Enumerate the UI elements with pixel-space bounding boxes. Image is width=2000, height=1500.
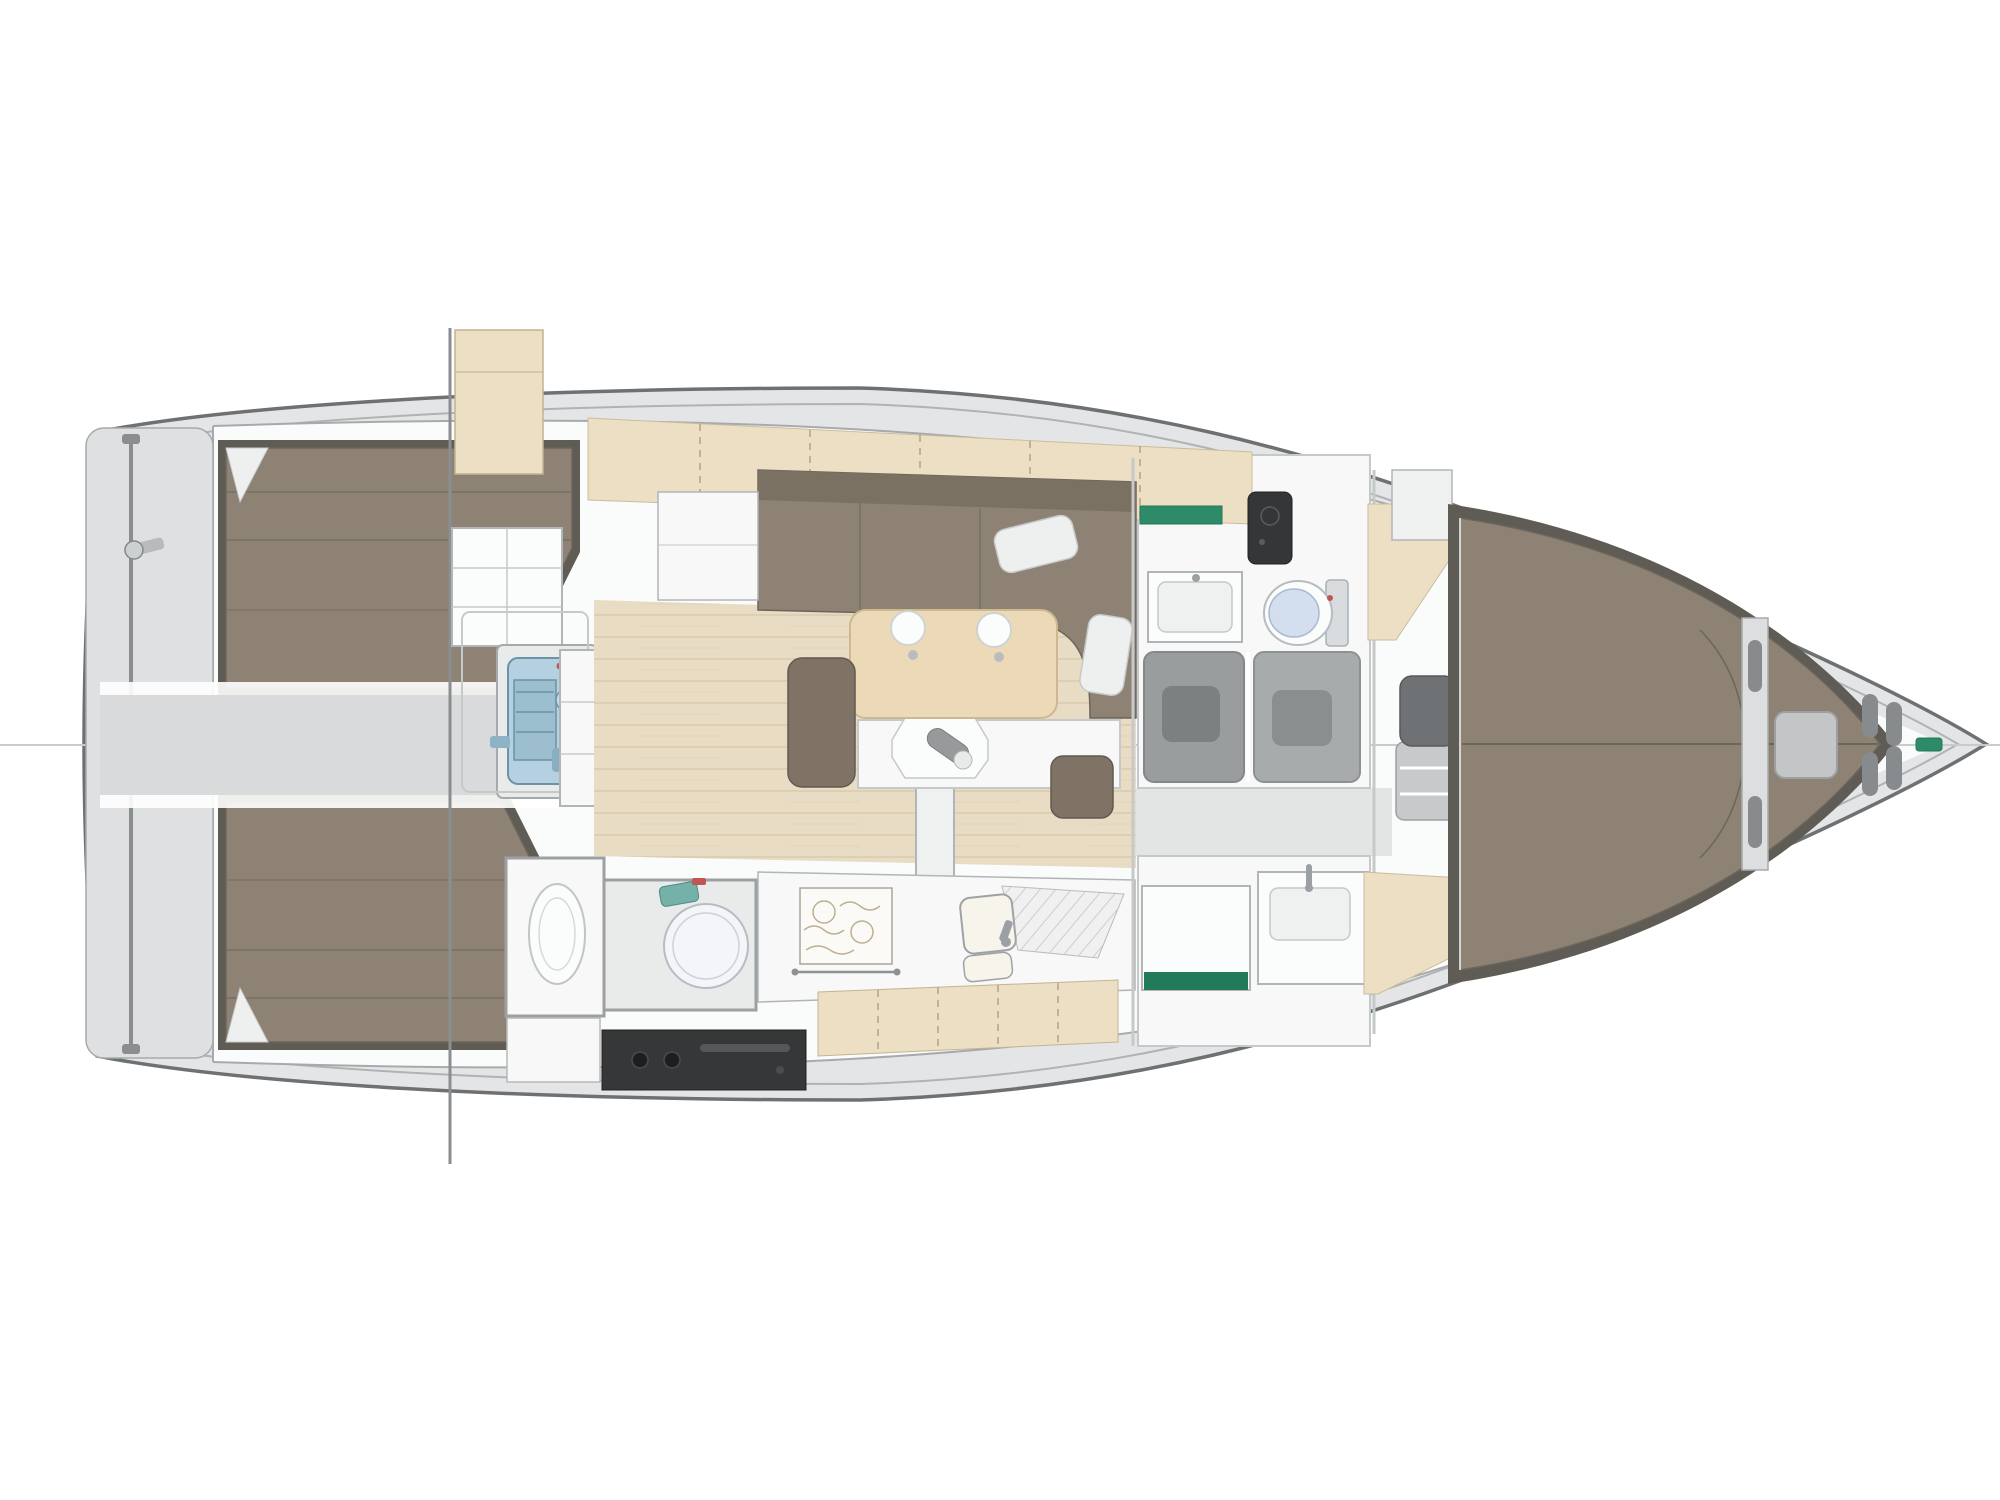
- oven-vent: [776, 1066, 784, 1074]
- corridor-wall-top: [100, 682, 560, 697]
- galley-lockers: Galley locker fronts: [818, 980, 1118, 1056]
- galley-sink-small: Galley sink: [963, 952, 1013, 983]
- starboard-head-group: Starboard heads / shower room Cabinet wi…: [1138, 856, 1370, 1046]
- ladder-cap-top: [122, 434, 140, 444]
- fitting-wheel: [125, 541, 143, 559]
- vanity-drain: [1259, 539, 1265, 545]
- oven-handle: [700, 1044, 790, 1052]
- galley-cabinet-front: Galley cabinet front: [507, 1018, 600, 1082]
- hawse-slot: [1886, 746, 1902, 790]
- corridor-wall-bottom: [100, 793, 560, 808]
- settee-end-cabinet: Settee end cabinet: [658, 492, 758, 600]
- gimbal-pivot: [894, 969, 901, 976]
- galley-faucet-base: [1001, 937, 1011, 947]
- sink-faucet-base: [1305, 884, 1313, 892]
- cup-holder: Recessed cup holder: [891, 611, 925, 645]
- shower-seat: Shower seat: [1272, 690, 1332, 746]
- salon-table-top: Saloon table (wood top): [850, 610, 1057, 718]
- forward-walkway: Passage to forward cabin: [1136, 788, 1392, 856]
- toilet-lid: [1269, 589, 1319, 637]
- water-heater-tank: [664, 904, 748, 988]
- heater-valve: [692, 878, 706, 885]
- starboard-sink-console: Washbasin console: [1258, 864, 1368, 984]
- vanity-unit: Dark vanity unit: [1248, 492, 1292, 564]
- cabinet-green-base: [1144, 972, 1248, 990]
- salon-bench-fwd: Upholstered bench (forward): [1051, 756, 1113, 818]
- bulkhead-slot: [1748, 796, 1762, 848]
- companionway-hatch: Companionway hatch panels: [452, 528, 562, 646]
- companionway-garage: Companionway garage: [455, 330, 543, 474]
- cup-holder-latch: [908, 650, 918, 660]
- water-heater-bay: Water heater / round tank Pump unit: [604, 878, 756, 1010]
- stove-group: Gimbaled stove with pot holders: [792, 888, 901, 976]
- floor-plan-svg: Sailing yacht interior layout plan (top …: [0, 0, 2000, 1500]
- table-pedestal: Table pedestal: [916, 788, 954, 888]
- aft-head: Aft heads compartment Aft heads bowl: [506, 858, 604, 1016]
- forward-cabinet: [1392, 470, 1452, 540]
- hawse-slot: [1862, 752, 1878, 796]
- aft-head-bowl: Aft heads bowl: [529, 884, 585, 984]
- oven-knob: [664, 1052, 680, 1068]
- cup-holder-latch: [994, 652, 1004, 662]
- vanity-top: [1248, 492, 1292, 564]
- boat-floor-plan: Sailing yacht interior layout plan (top …: [0, 0, 2000, 1500]
- bottle-cap: [954, 751, 972, 769]
- toilet-pump: [1327, 595, 1333, 601]
- toilet-group: Toilet: [1264, 580, 1348, 646]
- bulkhead-slot: [1748, 640, 1762, 692]
- sink-basin: [1158, 582, 1232, 632]
- bow-fitting: Bow fitting (green): [1916, 738, 1942, 751]
- green-shelf: Green shelf: [1140, 506, 1222, 524]
- sink-faucet: [1192, 574, 1200, 582]
- green-base-cabinet: Cabinet with green base: [1142, 886, 1250, 990]
- shower-seat: Shower seat: [1162, 686, 1220, 742]
- hawse-slot: [1886, 702, 1902, 746]
- sink-basin: [1270, 888, 1350, 940]
- oven-knob: [632, 1052, 648, 1068]
- windlass-box: Windlass / locker lid: [1775, 712, 1837, 778]
- oven-group: Oven / cooker front: [602, 1030, 806, 1090]
- head-sink-console: Heads washbasin console: [1148, 572, 1242, 642]
- galley-locker-row: [818, 980, 1118, 1056]
- cup-holder: Recessed cup holder: [977, 613, 1011, 647]
- forward-cabin-seat: Forward cabin seat: [1400, 676, 1456, 746]
- gimbal-pivot: [792, 969, 799, 976]
- chain-locker-bulkhead: Chain locker bulkhead: [1742, 618, 1768, 870]
- hawse-slot: [1862, 694, 1878, 738]
- ladder-cap-bottom: [122, 1044, 140, 1054]
- salon-bench-aft: Upholstered bench (aft): [788, 658, 855, 787]
- engine-shaft: [490, 736, 510, 748]
